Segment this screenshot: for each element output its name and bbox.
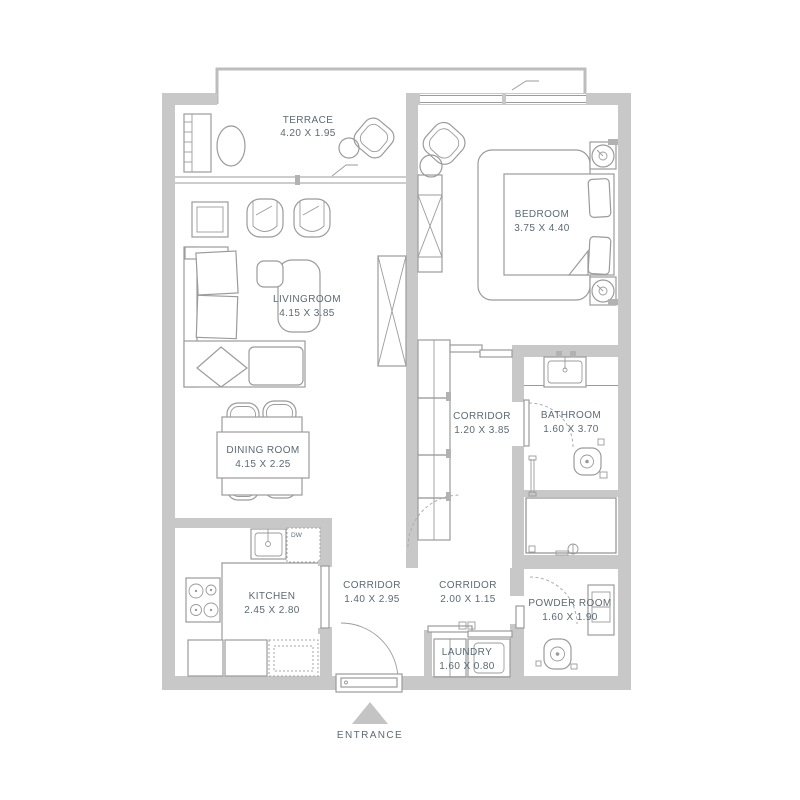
entrance-arrow-icon	[352, 702, 388, 724]
corridor-bedroom-label: CORRIDOR	[453, 411, 511, 422]
dining-room-label: DINING ROOM	[226, 445, 299, 456]
corridor-entry-label: CORRIDOR	[343, 580, 401, 591]
corridor-bedroom-dims: 1.20 X 3.85	[454, 425, 510, 436]
kitchen-door	[318, 560, 331, 634]
corridor-entry-dims: 1.40 X 2.95	[344, 594, 400, 605]
bedroom-side-table	[420, 155, 442, 177]
laundry-dims: 1.60 X 0.80	[439, 661, 495, 672]
hob-stove	[186, 578, 220, 622]
floor-plan-svg: DW	[0, 0, 800, 800]
bedroom-dims: 3.75 X 4.40	[514, 223, 570, 234]
bathroom-label: BATHROOM	[541, 410, 601, 421]
kitchen-label: KITCHEN	[249, 591, 296, 602]
livingroom-dims: 4.15 X 3.85	[279, 308, 335, 319]
floor-plan-page: DW	[0, 0, 800, 800]
bedroom-wardrobe	[418, 175, 442, 272]
bedroom-chair	[419, 118, 470, 169]
shower-room	[526, 498, 616, 555]
dining-room-dims: 4.15 X 2.25	[235, 459, 291, 470]
wall-nub	[608, 299, 618, 305]
terrace-bench	[184, 114, 211, 172]
bedroom-sliding-door	[450, 345, 512, 357]
powder-room-dims: 1.60 X 1.90	[542, 612, 598, 623]
kitchen-lower-cabinets	[188, 640, 318, 676]
laundry-label: LAUNDRY	[442, 647, 492, 658]
powder-toilet	[536, 639, 577, 669]
nightstand-lamp	[590, 142, 616, 169]
terrace-dims: 4.20 X 1.95	[280, 128, 336, 139]
entrance-label: ENTRANCE	[337, 730, 403, 741]
corridor-inner-dims: 2.00 X 1.15	[440, 594, 496, 605]
bedroom-label: BEDROOM	[515, 209, 569, 220]
powder-room-label: POWDER ROOM	[528, 598, 611, 609]
tv-unit	[378, 256, 406, 366]
bathroom-dims: 1.60 X 3.70	[543, 424, 599, 435]
armchair	[294, 199, 330, 237]
corridor-inner-label: CORRIDOR	[439, 580, 497, 591]
toilet	[574, 439, 607, 478]
wall-nub	[608, 139, 618, 145]
terrace-table	[217, 126, 245, 166]
powder-vanity	[588, 585, 614, 635]
bedroom-window	[420, 81, 586, 104]
terrace-chair	[350, 114, 398, 162]
kitchen-counter	[222, 529, 320, 640]
entrance-door	[336, 623, 402, 692]
dishwasher-label: DW	[291, 532, 303, 539]
living-side-table	[192, 202, 228, 237]
terrace-side-table	[339, 138, 359, 158]
armchair	[247, 199, 283, 237]
livingroom-label: LIVINGROOM	[273, 294, 341, 305]
dishwasher: DW	[287, 528, 320, 562]
kitchen-dims: 2.45 X 2.80	[244, 605, 300, 616]
terrace-label: TERRACE	[283, 115, 334, 126]
